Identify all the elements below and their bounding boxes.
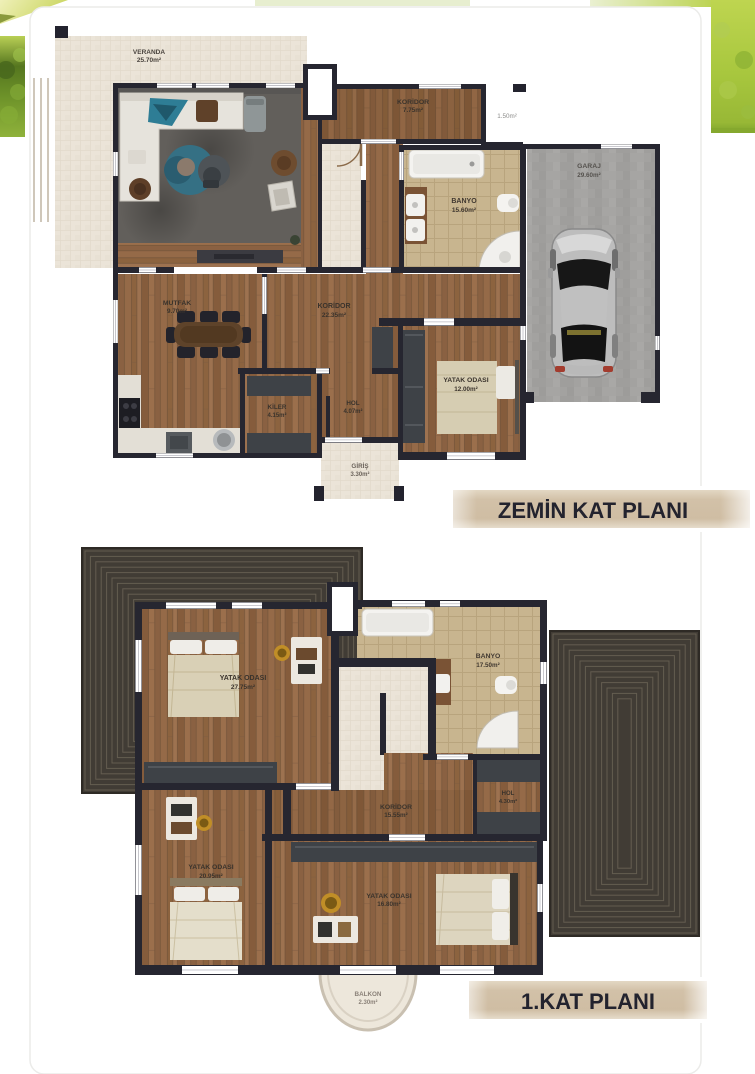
svg-text:VERANDA: VERANDA [133, 49, 165, 56]
svg-text:YATAK ODASI: YATAK ODASI [188, 864, 233, 871]
svg-text:16.80m²: 16.80m² [377, 901, 400, 908]
svg-text:7.75m²: 7.75m² [403, 107, 423, 114]
svg-text:YATAK ODASI: YATAK ODASI [366, 893, 411, 900]
svg-text:MUTFAK: MUTFAK [163, 300, 191, 307]
svg-text:15.55m²: 15.55m² [384, 812, 407, 819]
svg-text:KİLER: KİLER [268, 403, 287, 411]
svg-text:HOL: HOL [502, 791, 515, 797]
svg-text:27.75m²: 27.75m² [231, 684, 256, 691]
svg-text:1.50m²: 1.50m² [497, 113, 517, 120]
svg-text:22.35m²: 22.35m² [322, 312, 347, 319]
svg-text:9.70m²: 9.70m² [167, 308, 187, 315]
svg-text:17.50m²: 17.50m² [476, 662, 499, 669]
svg-text:KORİDOR: KORİDOR [397, 98, 429, 106]
svg-text:4.15m²: 4.15m² [267, 412, 286, 419]
svg-text:4.07m²: 4.07m² [343, 408, 362, 415]
svg-text:YATAK ODASI: YATAK ODASI [220, 675, 267, 682]
svg-text:GARAJ: GARAJ [577, 163, 601, 170]
svg-text:KORİDOR: KORİDOR [380, 803, 412, 811]
svg-text:4.30m²: 4.30m² [499, 798, 517, 805]
svg-text:BANYO: BANYO [451, 198, 477, 205]
svg-text:25.70m²: 25.70m² [137, 57, 162, 64]
svg-text:1.KAT PLANI: 1.KAT PLANI [521, 989, 655, 1014]
svg-text:29.60m²: 29.60m² [577, 172, 600, 179]
svg-text:12.00m²: 12.00m² [454, 386, 477, 393]
svg-text:BANYO: BANYO [476, 653, 501, 660]
svg-text:GİRİŞ: GİRİŞ [351, 462, 368, 470]
svg-text:15.60m²: 15.60m² [452, 207, 477, 214]
svg-text:HOL: HOL [346, 400, 359, 407]
svg-text:2.30m²: 2.30m² [358, 999, 377, 1006]
svg-text:3.30m²: 3.30m² [350, 471, 369, 478]
svg-text:BALKON: BALKON [355, 991, 382, 998]
svg-text:YATAK ODASI: YATAK ODASI [443, 377, 488, 384]
svg-text:KORİDOR: KORİDOR [317, 302, 350, 310]
svg-text:ZEMİN KAT PLANI: ZEMİN KAT PLANI [498, 498, 688, 523]
